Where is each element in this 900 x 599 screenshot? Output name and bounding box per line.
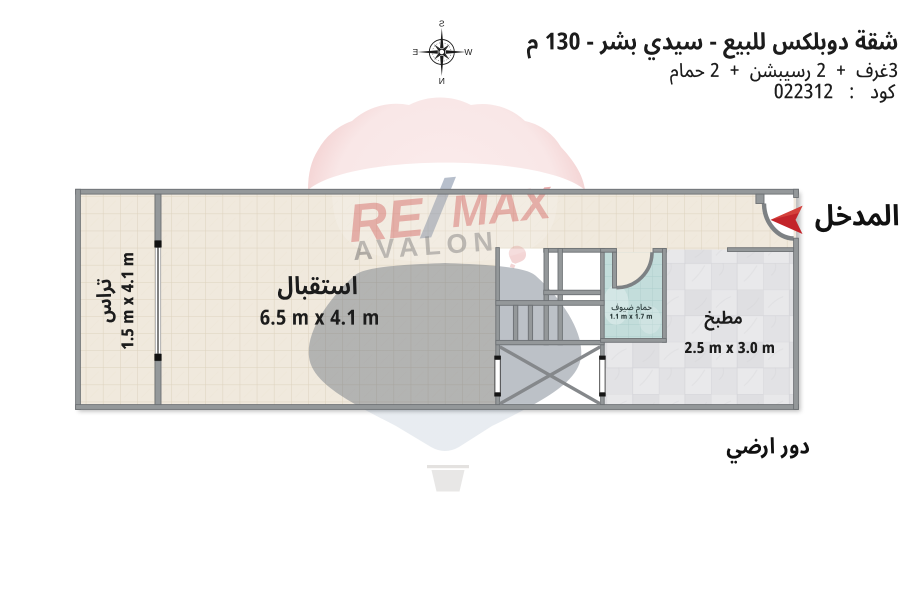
svg-text:W: W [464,47,472,57]
svg-text:S: S [439,19,445,29]
svg-text:E: E [412,47,418,57]
svg-text:N: N [439,76,445,86]
